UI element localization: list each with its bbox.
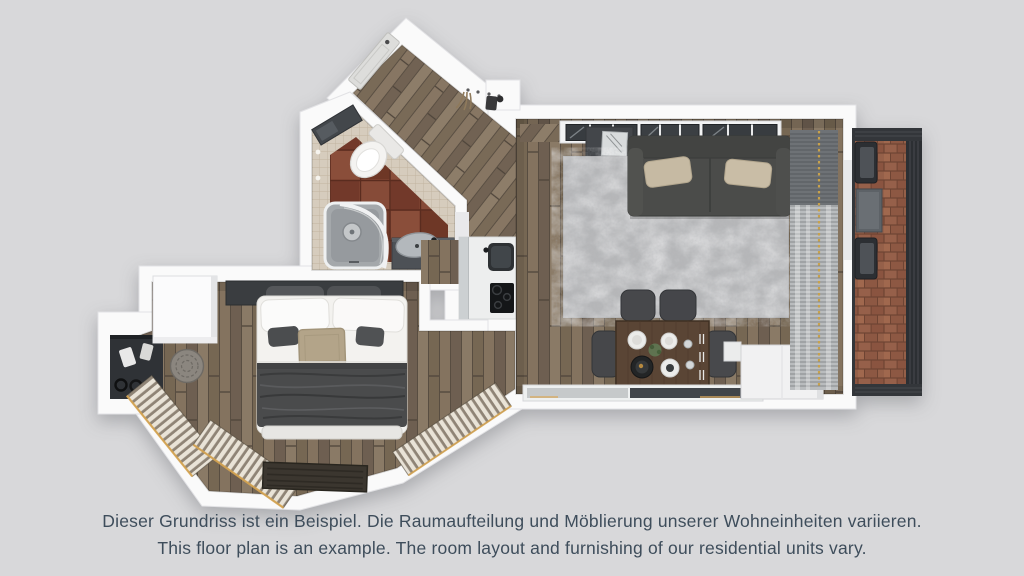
caption-english: This floor plan is an example. The room …	[0, 535, 1024, 562]
closet	[153, 276, 217, 343]
balcony-door	[844, 160, 853, 260]
sofa-armrest	[628, 148, 643, 216]
caption: Dieser Grundriss ist ein Beispiel. Die R…	[0, 508, 1024, 562]
bottom-window	[523, 385, 763, 401]
balcony-chair	[855, 238, 877, 279]
shower-icon	[325, 203, 387, 268]
screenshot: Dieser Grundriss ist ein Beispiel. Die R…	[0, 0, 1024, 576]
curtains	[790, 130, 838, 390]
sconce-icon	[316, 176, 321, 181]
accent-pillow	[267, 326, 300, 348]
bedroom-door-opening	[421, 240, 459, 284]
bed-bench	[262, 426, 402, 439]
dining-chair	[660, 290, 696, 321]
balcony-chair	[855, 142, 877, 183]
tv-sideboard	[586, 127, 633, 160]
balcony-table	[856, 189, 882, 232]
sofa	[628, 136, 791, 219]
pouf-icon	[171, 350, 204, 383]
sconce-icon	[316, 150, 321, 155]
sofa-armrest	[776, 148, 791, 216]
double-bed	[257, 296, 407, 439]
glass-icon	[686, 361, 694, 369]
dining-chair	[621, 290, 655, 321]
floor-plan	[0, 0, 1024, 576]
accent-pillow	[355, 326, 385, 347]
caption-german: Dieser Grundriss ist ein Beispiel. Die R…	[0, 508, 1024, 535]
dining-table	[616, 321, 709, 388]
sofa-cushion	[724, 159, 772, 189]
faucet-icon	[483, 247, 488, 252]
living-room	[516, 119, 853, 401]
kitchenette	[459, 237, 516, 319]
balcony	[852, 128, 922, 396]
doormat-icon	[263, 462, 368, 492]
glass-icon	[684, 340, 692, 348]
